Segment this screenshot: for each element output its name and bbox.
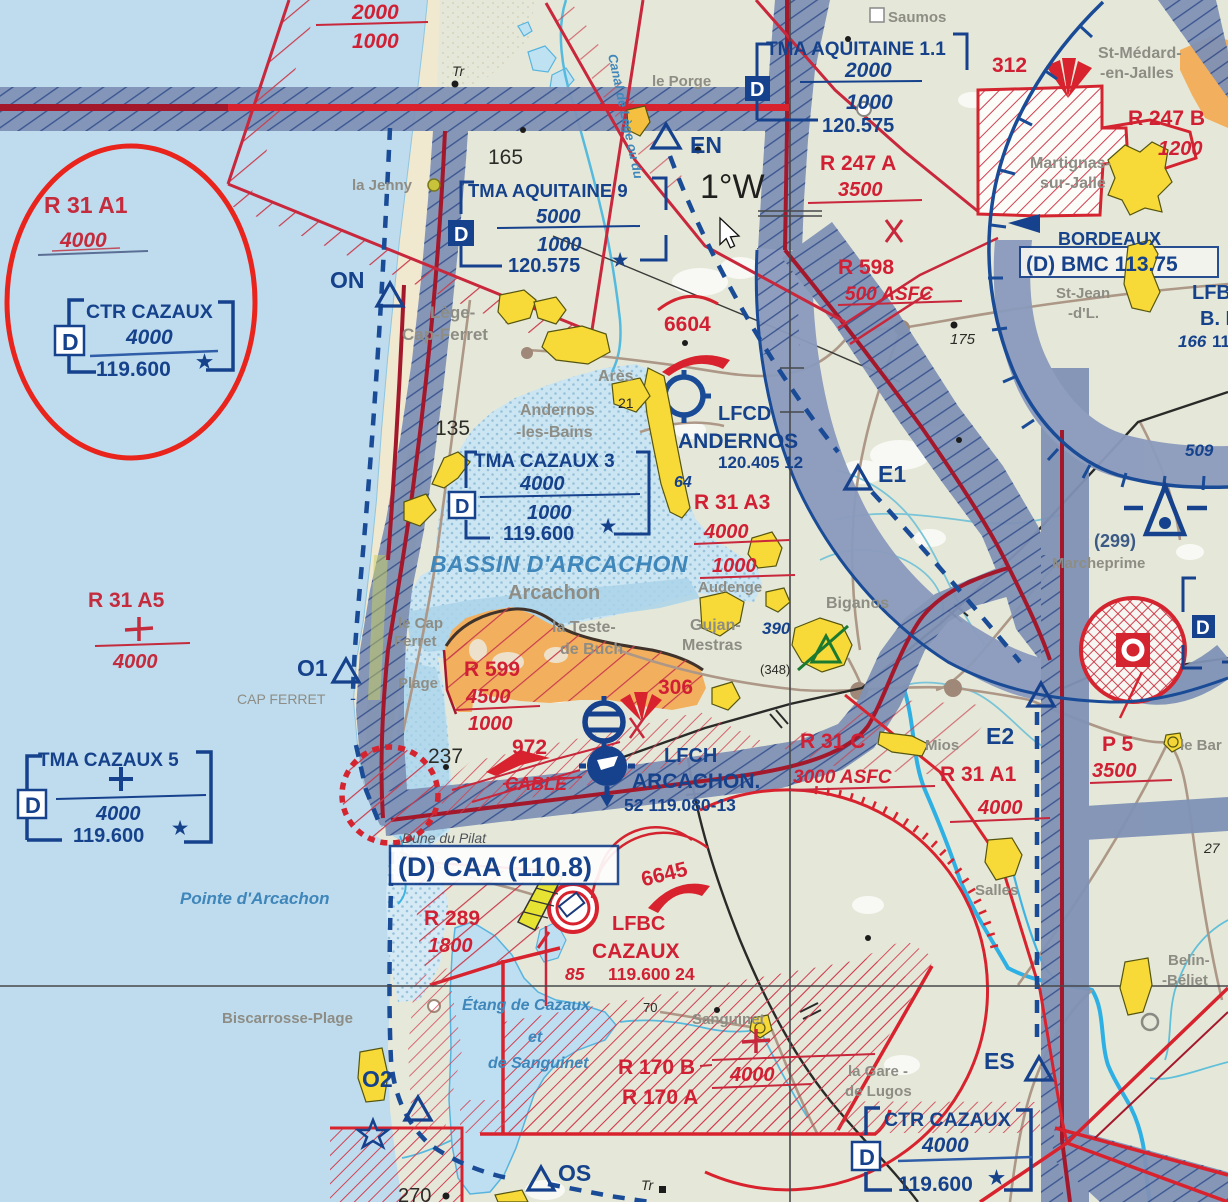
svg-text:Étang de Cazaux: Étang de Cazaux — [462, 995, 591, 1014]
svg-text:Mestras: Mestras — [682, 637, 743, 654]
svg-text:LFCD: LFCD — [718, 403, 771, 425]
svg-text:2000: 2000 — [351, 1, 399, 24]
svg-text:la Teste-: la Teste- — [552, 619, 616, 636]
svg-text:E2: E2 — [986, 723, 1014, 749]
svg-text:Gujan-: Gujan- — [690, 617, 741, 634]
svg-text:4000: 4000 — [112, 651, 158, 673]
svg-text:Tr: Tr — [641, 1177, 655, 1193]
svg-text:★: ★ — [172, 818, 189, 838]
svg-text:Mios: Mios — [925, 737, 959, 754]
svg-text:Andernos: Andernos — [520, 402, 595, 419]
svg-text:★: ★ — [196, 352, 213, 373]
svg-text:et: et — [528, 1029, 543, 1046]
svg-text:ARCACHON.: ARCACHON. — [632, 770, 760, 793]
svg-text:ES: ES — [984, 1048, 1015, 1074]
svg-text:1000: 1000 — [527, 502, 572, 524]
svg-text:CAZAUX: CAZAUX — [592, 940, 680, 963]
svg-text:Marcheprime: Marcheprime — [1052, 555, 1145, 572]
svg-text:de Buch: de Buch — [560, 641, 623, 658]
svg-text:R 247 B: R 247 B — [1128, 107, 1205, 130]
svg-text:120.575: 120.575 — [508, 255, 580, 277]
svg-text:la Gare -: la Gare - — [848, 1063, 908, 1080]
svg-text:de Sanguinet: de Sanguinet — [488, 1055, 589, 1072]
svg-text:R 170 B: R 170 B — [618, 1056, 695, 1079]
svg-text:120.575: 120.575 — [822, 115, 894, 137]
svg-text:509: 509 — [1185, 441, 1214, 460]
svg-text:120.405 12: 120.405 12 — [718, 453, 803, 472]
svg-text:BORDEAUX: BORDEAUX — [1058, 229, 1161, 249]
svg-text:165: 165 — [488, 146, 523, 169]
svg-text:70: 70 — [643, 1000, 657, 1015]
svg-text:D: D — [455, 496, 469, 518]
svg-text:119.600: 119.600 — [73, 825, 144, 847]
svg-text:R 170 A: R 170 A — [622, 1086, 698, 1109]
svg-text:-Béliet: -Béliet — [1162, 972, 1208, 989]
svg-text:CAP FERRET: CAP FERRET — [237, 691, 326, 707]
svg-text:D: D — [454, 224, 468, 246]
svg-text:TMA CAZAUX 3: TMA CAZAUX 3 — [474, 451, 615, 472]
svg-text:le Cap: le Cap — [398, 615, 443, 632]
svg-text:B. MERIC: B. MERIC — [1200, 308, 1228, 330]
svg-text:Saumos: Saumos — [888, 9, 946, 26]
svg-text:-en-Jalles: -en-Jalles — [1100, 65, 1174, 82]
svg-text:Plage: Plage — [398, 675, 438, 692]
svg-text:OS: OS — [558, 1160, 591, 1186]
svg-text:27: 27 — [1203, 840, 1221, 856]
svg-text:-les-Bains: -les-Bains — [516, 424, 593, 441]
svg-text:R 31 C: R 31 C — [800, 730, 865, 753]
svg-text:175: 175 — [950, 331, 976, 348]
svg-text:135: 135 — [435, 417, 470, 440]
svg-text:R 598: R 598 — [838, 256, 894, 279]
svg-text:1000: 1000 — [537, 234, 582, 256]
svg-text:166: 166 — [1178, 332, 1207, 351]
svg-text:Dune du Pilat: Dune du Pilat — [402, 830, 487, 846]
svg-text:St-Jean: St-Jean — [1056, 285, 1110, 302]
svg-text:119.600: 119.600 — [898, 1173, 973, 1196]
svg-text:CTR CAZAUX: CTR CAZAUX — [884, 1109, 1011, 1131]
svg-text:EN: EN — [690, 132, 722, 158]
svg-text:Biscarrosse-Plage: Biscarrosse-Plage — [222, 1010, 353, 1027]
svg-text:Cap-Ferret: Cap-Ferret — [402, 325, 488, 344]
svg-text:4000: 4000 — [977, 797, 1023, 819]
svg-text:Sanguinet: Sanguinet — [692, 1011, 765, 1028]
svg-text:D: D — [25, 793, 41, 818]
svg-text:E1: E1 — [878, 461, 906, 487]
svg-text:Arès: Arès — [598, 368, 634, 385]
svg-text:1000: 1000 — [846, 91, 893, 114]
svg-text:★: ★ — [600, 516, 617, 536]
svg-text:de Lugos: de Lugos — [845, 1083, 912, 1100]
svg-text:390: 390 — [762, 619, 791, 638]
svg-text:1000: 1000 — [352, 30, 399, 53]
svg-text:3000 ASFC: 3000 ASFC — [793, 767, 892, 788]
svg-text:Salles: Salles — [975, 882, 1018, 899]
svg-text:le Porge: le Porge — [652, 73, 711, 90]
svg-text:-d'L.: -d'L. — [1068, 305, 1099, 322]
svg-text:1800: 1800 — [428, 935, 473, 957]
svg-text:O1: O1 — [297, 655, 328, 681]
svg-text:2000: 2000 — [844, 59, 892, 82]
svg-text:D: D — [62, 329, 79, 355]
svg-text:LFBC: LFBC — [612, 913, 665, 935]
svg-text:(299): (299) — [1094, 531, 1136, 551]
svg-text:119.600 24: 119.600 24 — [608, 964, 695, 984]
svg-text:52 119.080-13: 52 119.080-13 — [624, 795, 736, 815]
svg-text:306: 306 — [658, 676, 693, 699]
svg-text:Lège-: Lège- — [430, 303, 475, 322]
svg-text:4000: 4000 — [921, 1134, 969, 1157]
svg-text:3500: 3500 — [838, 179, 883, 201]
svg-text:237: 237 — [428, 745, 463, 768]
svg-text:119.600: 119.600 — [503, 523, 574, 545]
svg-text:1200: 1200 — [1158, 138, 1203, 160]
svg-text:(348): (348) — [760, 662, 790, 677]
svg-text:O2: O2 — [362, 1066, 393, 1092]
svg-text:4000: 4000 — [729, 1064, 775, 1086]
svg-text:Ferret: Ferret — [394, 633, 437, 650]
svg-text:ON: ON — [330, 267, 365, 293]
svg-text:TMA CAZAUX 5: TMA CAZAUX 5 — [38, 750, 179, 771]
svg-text:Biganos: Biganos — [826, 595, 889, 612]
svg-text:Tr: Tr — [452, 63, 466, 79]
svg-text:6604: 6604 — [664, 313, 711, 336]
svg-text:4500: 4500 — [465, 686, 511, 708]
svg-text:D: D — [750, 79, 764, 101]
svg-text:1000: 1000 — [712, 555, 757, 577]
svg-text:4000: 4000 — [95, 803, 141, 825]
svg-text:(D) CAA (110.8): (D) CAA (110.8) — [398, 852, 592, 882]
svg-text:P 5: P 5 — [1102, 733, 1133, 756]
svg-text:270: 270 — [398, 1185, 431, 1202]
svg-text:D: D — [859, 1145, 875, 1170]
svg-text:118.3: 118.3 — [1212, 332, 1228, 351]
svg-text:1000: 1000 — [468, 713, 513, 735]
svg-text:TMA AQUITAINE 9: TMA AQUITAINE 9 — [468, 180, 628, 201]
svg-text:312: 312 — [992, 54, 1027, 77]
svg-text:21: 21 — [618, 395, 634, 411]
svg-text:85: 85 — [565, 964, 585, 984]
svg-text:R 31 A1: R 31 A1 — [940, 763, 1017, 786]
svg-text:R 289: R 289 — [424, 907, 480, 930]
svg-text:4000: 4000 — [125, 326, 173, 349]
svg-text:le Bar: le Bar — [1180, 737, 1222, 754]
svg-text:D: D — [1196, 618, 1210, 639]
svg-text:4000: 4000 — [519, 473, 565, 495]
svg-text:CTR CAZAUX: CTR CAZAUX — [86, 301, 213, 323]
svg-text:★: ★ — [612, 250, 629, 270]
svg-text:Audenge: Audenge — [698, 579, 762, 596]
svg-text:119.600: 119.600 — [96, 358, 171, 381]
svg-text:St-Médard-: St-Médard- — [1098, 45, 1182, 62]
svg-text:R 247 A: R 247 A — [820, 152, 896, 175]
svg-text:Arcachon: Arcachon — [508, 582, 600, 604]
svg-text:BASSIN D'ARCACHON: BASSIN D'ARCACHON — [430, 551, 688, 577]
svg-text:R 31 A1: R 31 A1 — [44, 192, 128, 218]
svg-text:★: ★ — [988, 1168, 1005, 1189]
svg-text:R 31 A5: R 31 A5 — [88, 589, 165, 612]
svg-text:CABLE: CABLE — [505, 774, 568, 794]
svg-text:Belin-: Belin- — [1168, 952, 1210, 969]
svg-text:LFBD: LFBD — [1192, 282, 1228, 304]
svg-text:R 599: R 599 — [464, 658, 520, 681]
svg-text:64: 64 — [674, 474, 692, 491]
svg-text:972: 972 — [512, 736, 547, 759]
svg-text:R 31 A3: R 31 A3 — [694, 491, 770, 514]
svg-text:3500: 3500 — [1092, 760, 1137, 782]
svg-text:sur-Jalle: sur-Jalle — [1040, 175, 1106, 192]
svg-text:TMA AQUITAINE 1.1: TMA AQUITAINE 1.1 — [766, 39, 946, 60]
svg-text:5000: 5000 — [536, 206, 581, 228]
svg-text:la Jenny: la Jenny — [352, 177, 413, 194]
svg-text:Martignas-: Martignas- — [1030, 155, 1111, 172]
svg-text:Pointe d'Arcachon: Pointe d'Arcachon — [180, 889, 330, 908]
svg-text:1°W: 1°W — [700, 168, 765, 206]
svg-text:4000: 4000 — [703, 521, 749, 543]
svg-text:(D) BMC 113.75: (D) BMC 113.75 — [1026, 253, 1178, 276]
svg-text:LFCH: LFCH — [664, 745, 717, 767]
svg-text:ANDERNOS: ANDERNOS — [678, 430, 798, 453]
